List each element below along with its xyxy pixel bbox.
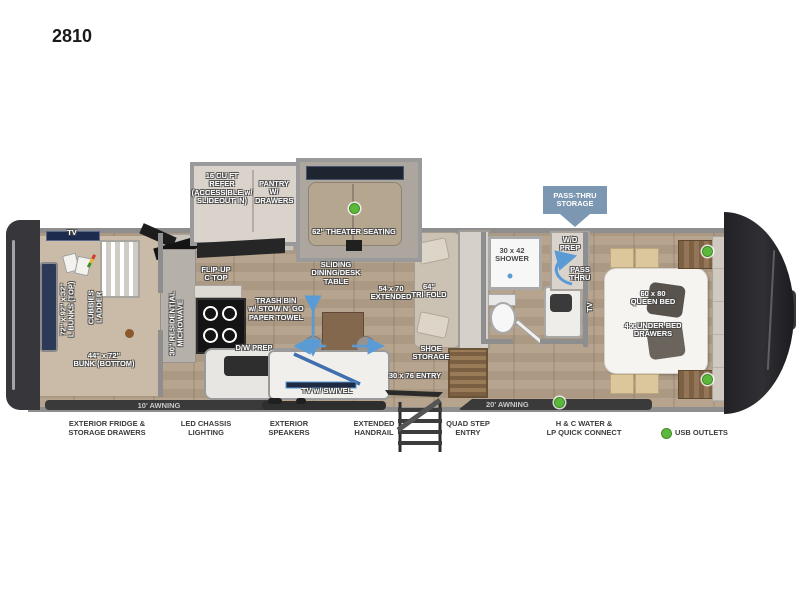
entry-steps-wood xyxy=(448,348,488,398)
cubbies-ladder-label: CUBBIES LADDER xyxy=(88,257,105,357)
bunks-top-label: 72" x 92" x 32" L BUNKS (TOP) xyxy=(60,259,77,359)
bathroom-wall xyxy=(540,339,588,344)
bunk-tv-label: TV xyxy=(46,229,98,237)
pass-thru-storage-label: PASS-THRU STORAGE xyxy=(553,192,596,209)
dining-table-label: SLIDING DINING/DESK TABLE xyxy=(306,261,366,286)
pass-thru-label: PASS THRU xyxy=(560,266,600,283)
burner xyxy=(222,328,237,343)
burner xyxy=(203,306,218,321)
burner xyxy=(203,328,218,343)
bedroom-tv-label: TV xyxy=(586,287,594,327)
theater-label: 62" THEATER SEATING xyxy=(300,228,408,236)
trash-bin-label: TRASH BIN w/ STOW N' GO PAPER TOWEL xyxy=(243,297,309,322)
bunkroom-wall xyxy=(158,330,163,397)
pantry-label: PANTRY W/ DRAWERS xyxy=(255,180,293,205)
shower-label: 30 x 42 SHOWER xyxy=(489,247,535,264)
refer-label: 16 CU FT REFER (ACCESSIBLE w/ SLIDEOUT I… xyxy=(191,172,253,206)
teddy-bear xyxy=(125,329,134,338)
bunk-window xyxy=(40,262,58,352)
toilet xyxy=(490,302,516,334)
floorplan-canvas: 2810 TV 72" x 92" x 32" L BUNKS (TOP) CU… xyxy=(0,0,800,600)
flip-up-counter xyxy=(194,285,242,298)
usb-legend-label: USB OUTLETS xyxy=(675,428,745,437)
bed-bench xyxy=(610,374,634,394)
callout-extended-handrail: EXTENDED HANDRAIL xyxy=(334,419,414,438)
flip-up-label: FLIP-UP C-TOP xyxy=(192,266,240,283)
usb-legend-dot xyxy=(661,428,672,439)
awning-20ft-label: 20' AWNING xyxy=(486,400,529,409)
sofa-label: 64" TRI-FOLD xyxy=(406,283,452,300)
bath-sink xyxy=(550,294,572,312)
awning-10ft-label: 10' AWNING xyxy=(138,401,181,410)
callout-led-lighting: LED CHASSIS LIGHTING xyxy=(160,419,252,438)
shoe-storage-label: SHOE STORAGE xyxy=(408,345,454,362)
burner xyxy=(222,306,237,321)
queen-bed-label: 60 x 80 QUEEN BED xyxy=(610,290,696,307)
flag-pointer xyxy=(560,214,590,227)
bathroom-wall xyxy=(481,232,486,344)
awning-10ft: 10' AWNING xyxy=(45,400,273,410)
rear-cap-highlight xyxy=(12,240,15,390)
bed-bench xyxy=(610,248,634,268)
microwave-label: 30" RESIDENTIAL MICROWAVE xyxy=(169,273,186,373)
underbed-drawers-label: 4 x UNDER BED DRAWERS xyxy=(606,322,700,339)
callout-exterior-fridge: EXTERIOR FRIDGE & STORAGE DRAWERS xyxy=(55,419,159,438)
callout-water-connect: H & C WATER & LP QUICK CONNECT xyxy=(532,419,636,438)
bathroom-wall xyxy=(481,339,513,344)
usb-outlet-dot xyxy=(702,246,713,257)
bed-bench xyxy=(635,248,659,268)
bunk-bottom-label: 44" x 72" BUNK (BOTTOM) xyxy=(62,352,146,369)
dw-prep-label: D/W PREP xyxy=(230,344,278,352)
wd-prep-label: W/D PREP xyxy=(550,236,590,253)
usb-outlet-dot xyxy=(349,203,360,214)
model-number: 2810 xyxy=(52,26,92,47)
entry-label: 30 x 76 ENTRY xyxy=(382,372,448,380)
usb-outlet-dot xyxy=(554,397,565,408)
tv-swivel-label: TV w/ SWIVEL xyxy=(292,387,362,395)
theater-seat xyxy=(308,182,402,246)
callout-exterior-speakers: EXTERIOR SPEAKERS xyxy=(250,419,328,438)
front-cap xyxy=(724,212,794,414)
usb-outlet-dot xyxy=(702,374,713,385)
callout-quad-step: QUAD STEP ENTRY xyxy=(428,419,508,438)
bed-bench xyxy=(635,374,659,394)
exterior-speaker xyxy=(296,398,306,404)
theater-tv xyxy=(306,166,404,180)
pass-thru-storage-flag: PASS-THRU STORAGE xyxy=(543,186,607,214)
exterior-speaker xyxy=(268,398,282,404)
cubbies-unit xyxy=(100,240,140,298)
bunkroom-wall xyxy=(158,233,163,293)
theater-console xyxy=(346,240,362,251)
